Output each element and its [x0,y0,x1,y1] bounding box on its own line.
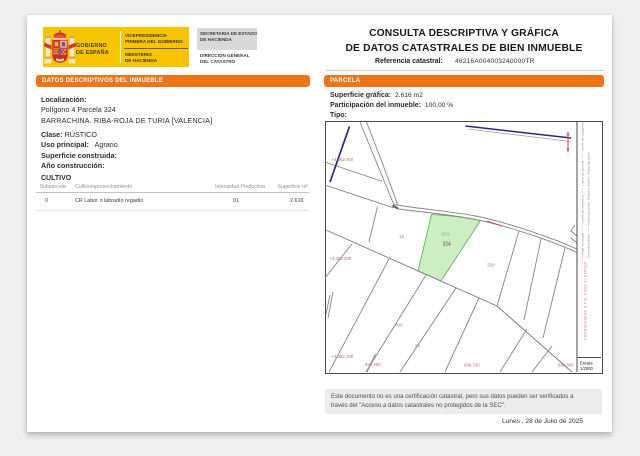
svg-text:698.600: 698.600 [365,362,381,367]
svg-text:30: 30 [415,343,421,348]
svg-text:+4.382.200: +4.382.200 [329,256,351,261]
svg-text:· · · Dominio público —— Cons: · · · Dominio público —— Construcciones … [586,151,590,263]
svg-text:—— Límite municipal —— Límite: —— Límite municipal —— Límite de manzana… [580,121,584,264]
svg-text:698.800: 698.800 [558,362,574,367]
svg-text:250: 250 [487,262,495,267]
svg-text:1/2000: 1/2000 [580,366,593,371]
svg-text:324: 324 [442,241,451,247]
svg-text:COORDENADAS U.T.M. HUSO 30 ETR: COORDENADAS U.T.M. HUSO 30 ETRS89 [583,261,587,339]
svg-text:698.700: 698.700 [464,362,480,367]
svg-text:0Ca: 0Ca [441,231,450,236]
svg-text:13: 13 [399,234,405,239]
svg-text:+4.382.300: +4.382.300 [331,157,353,162]
svg-text:+4.382.100: +4.382.100 [331,354,353,359]
svg-text:Escala: Escala [580,360,593,365]
svg-text:300: 300 [395,322,403,327]
